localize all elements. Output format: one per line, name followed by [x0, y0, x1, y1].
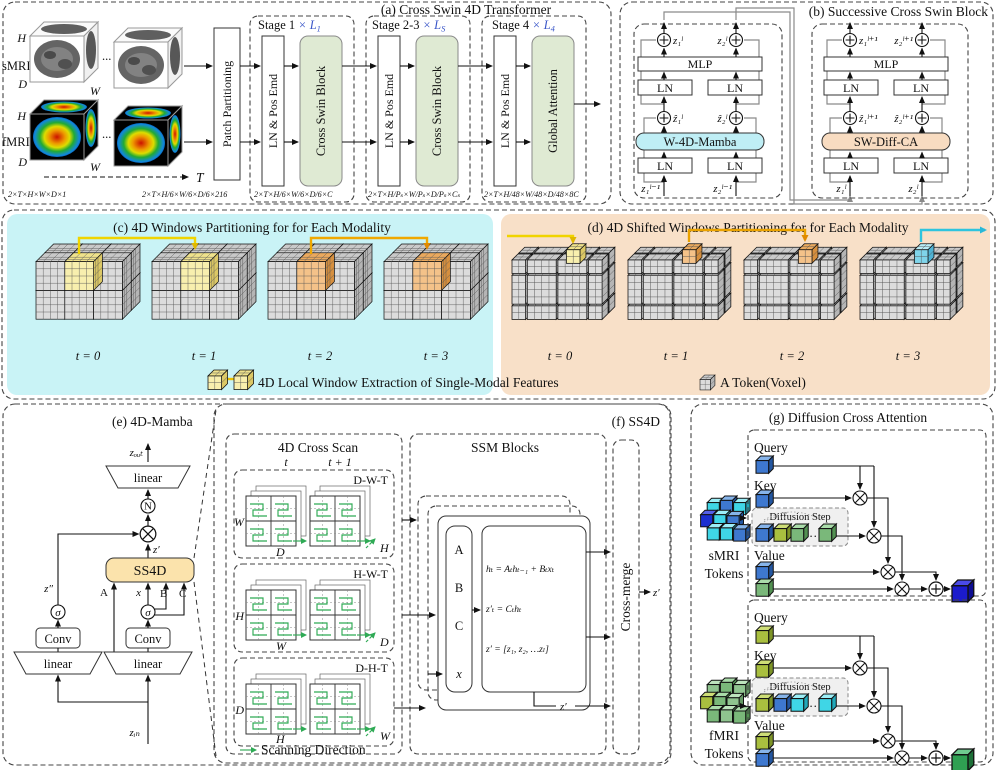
- zoom-connector: [194, 410, 216, 756]
- axis-bottom: W: [276, 639, 287, 653]
- mamba-cell-diagram: zₒᵤₜ linear N z′ SS4D A x B C σ Conv lin…: [14, 410, 216, 756]
- input-x-label: x: [135, 587, 141, 599]
- fmri-tokens-label-1: fMRI: [709, 728, 740, 743]
- z-in-1: z₁ˡ⁻¹: [640, 183, 660, 195]
- key-cube-icon: [756, 660, 773, 677]
- diffca-swin-subblock: MLP LN LN SW-Diff-CA LN LN z₁ˡ⁺¹ z₂ˡ⁺¹ ẑ…: [812, 23, 968, 198]
- highlight-token-orange: [798, 244, 818, 264]
- ln-label: LN: [727, 159, 743, 173]
- axis-right: W: [380, 729, 391, 743]
- fmri-volume-1: [30, 100, 98, 160]
- dim-input: 2×T×H×W×D×1: [8, 190, 66, 199]
- cross-swin-block-label: Cross Swin Block: [430, 65, 444, 156]
- linear-label: linear: [134, 657, 163, 671]
- highlight-window-yellow: [65, 253, 103, 291]
- ln-label: LN: [657, 159, 673, 173]
- ln-label: LN: [843, 81, 859, 95]
- stage-2-3-label: Stage 2-3× LS: [372, 18, 446, 34]
- window-cluster-t0: [36, 244, 140, 319]
- add-icon: [730, 34, 743, 47]
- z-in-2: z₂ˡ: [907, 183, 918, 195]
- value-cube-icon: [756, 579, 773, 596]
- axis-h-label: H: [16, 31, 27, 45]
- param-b: B: [455, 581, 463, 595]
- t-label: t: [284, 455, 288, 469]
- fmri-tokens-label-2: Tokens: [705, 746, 744, 761]
- stage-4-label: Stage 4× L4: [492, 18, 556, 34]
- legend-token-cube-icon: [700, 375, 715, 390]
- cross-scan-title: 4D Cross Scan: [278, 440, 358, 455]
- panel-a-title: (a) Cross Swin 4D Transformer: [381, 2, 552, 17]
- stage-1-label: Stage 1× L1: [258, 18, 321, 34]
- fmri-tokens-cluster: fMRI Tokens: [701, 678, 751, 761]
- sw-diff-ca-label: SW-Diff-CA: [854, 135, 918, 149]
- z-mid-1: ẑ₁ˡ⁺¹: [858, 113, 878, 125]
- input-a-label: A: [100, 587, 108, 599]
- window-cluster-t1: [152, 244, 256, 319]
- conv-label: Conv: [134, 632, 162, 646]
- z-out-2: z₂ˡ: [716, 35, 727, 47]
- dim-patch: 2×T×H/6×W/6×D/6×216: [142, 190, 227, 199]
- smri-tokens-label-2: Tokens: [705, 566, 744, 581]
- highlight-token-cyan: [914, 244, 934, 264]
- t3-label: t = 3: [424, 349, 448, 363]
- ssm-blocks: SSM Blocks A B C x hₜ = Aₜhₜ₋₁ + Bₜxₜ z′…: [394, 434, 610, 754]
- t2-label: t = 2: [780, 349, 804, 363]
- panel-b-border: [620, 2, 993, 204]
- query-label: Query: [754, 610, 788, 625]
- axis-bottom: D: [275, 545, 285, 559]
- ln-label: LN: [843, 159, 859, 173]
- scan-order-label: H-W-T: [353, 567, 388, 581]
- value-label: Value: [754, 718, 785, 733]
- ellipsis: ...: [102, 49, 111, 63]
- shifted-cluster-t2: [744, 244, 847, 320]
- axis-d-label: D: [17, 155, 27, 169]
- window-cluster-t2: [268, 244, 372, 319]
- w-4d-mamba-label: W-4D-Mamba: [664, 135, 737, 149]
- multiply-icon: [881, 565, 895, 579]
- cross-swin-block-label: Cross Swin Block: [314, 65, 328, 156]
- linear-label: linear: [44, 657, 73, 671]
- axis-left: W: [234, 515, 245, 529]
- z-mid-2: ẑ₂ˡ⁺¹: [893, 113, 913, 125]
- highlight-window-orange: [413, 253, 451, 291]
- value-label: Value: [754, 548, 785, 563]
- multiply-icon: [895, 751, 909, 765]
- smri-attention-block: Query Key Diffusion Step … Value: [748, 430, 986, 602]
- highlight-token-orange: [682, 244, 702, 264]
- stage-2-3: Stage 2-3× LS LN & Pos Emd Cross Swin Bl…: [366, 16, 470, 202]
- zin-label: zᵢₙ: [129, 727, 140, 739]
- add-icon: [929, 582, 943, 596]
- add-icon: [730, 112, 743, 125]
- z-out-1: z₁ˡ⁺¹: [858, 35, 878, 47]
- axis-right: H: [379, 541, 390, 555]
- eq-output: z′ₜ = Cₜhₜ: [485, 604, 522, 615]
- t1-label: t + 1: [328, 455, 351, 469]
- ln-label: LN: [657, 81, 673, 95]
- axis-w-label: W: [90, 84, 101, 98]
- t1-label: t = 1: [664, 349, 688, 363]
- scan-order-label: D-W-T: [353, 473, 388, 487]
- value-cube-icon: [756, 732, 773, 749]
- query-label: Query: [754, 440, 788, 455]
- smri-label: sMRI: [2, 59, 30, 73]
- fmri-label: fMRI: [2, 135, 30, 149]
- sigma-label: σ: [145, 607, 151, 619]
- add-icon: [844, 112, 857, 125]
- value-cube-icon: [756, 749, 773, 766]
- zout-label: zₒᵤₜ: [129, 447, 144, 459]
- shifted-cluster-t1: [628, 244, 731, 320]
- input-b-label: B: [160, 588, 167, 600]
- multiply-icon: [895, 582, 909, 596]
- ln-pos-emd-label: LN & Pos Emd: [266, 74, 280, 148]
- axis-d-label: D: [17, 77, 27, 91]
- z-mid-2: ẑ₂ˡ: [716, 113, 727, 125]
- axis-h-label: H: [16, 109, 27, 123]
- multiply-icon: [853, 491, 867, 505]
- smri-output-cube: [952, 580, 974, 602]
- smri-tokens-cluster: sMRI Tokens: [701, 496, 751, 581]
- eq-hidden-state: hₜ = Aₜhₜ₋₁ + Bₜxₜ: [486, 564, 555, 575]
- multiply-icon: [853, 661, 867, 675]
- axis-left: D: [234, 703, 244, 717]
- mlp-label: MLP: [688, 57, 713, 71]
- mamba-swin-subblock: MLP LN LN W-4D-Mamba LN LN z₁ˡ z₂ˡ ẑ₁ˡ ẑ…: [634, 8, 922, 204]
- shifted-cluster-t0: [512, 244, 615, 320]
- eq-sequence: z′ = [z₁, z₂, …zₗ]: [485, 644, 549, 655]
- ssm-title: SSM Blocks: [471, 440, 539, 455]
- linear-label: linear: [134, 471, 163, 485]
- ss4d-panel: (f) SS4D 4D Cross Scan t t + 1 D-W-T W D…: [214, 404, 670, 763]
- add-icon: [929, 751, 943, 765]
- shifted-cluster-t3: [860, 244, 963, 320]
- legend-window-cube-icon: [208, 370, 228, 390]
- param-c: C: [455, 619, 463, 633]
- global-attention-label: Global Attention: [546, 68, 560, 152]
- smri-volume-1: [30, 22, 98, 82]
- dim-stage4: 2×T×H/48×W/48×D/48×8C: [484, 190, 579, 199]
- key-cube-icon: [756, 490, 773, 507]
- t3-label: t = 3: [896, 349, 920, 363]
- add-icon: [916, 112, 929, 125]
- stage-4: Stage 4× L4 LN & Pos Emd Global Attentio…: [482, 16, 586, 202]
- panel-e-title: (e) 4D-Mamba: [112, 414, 193, 429]
- z-out-2: z₂ˡ⁺¹: [893, 35, 913, 47]
- add-icon: [916, 34, 929, 47]
- scan-group-dwt: D-W-T W D H: [234, 470, 394, 559]
- legend-token-label: A Token(Voxel): [720, 375, 806, 390]
- highlight-window-yellow: [181, 253, 219, 291]
- zdprime-label: z″: [43, 583, 53, 595]
- norm-label: N: [144, 501, 152, 513]
- t0-label: t = 0: [548, 349, 573, 363]
- input-c-label: C: [179, 588, 186, 600]
- ellipsis: ...: [102, 127, 111, 141]
- conv-label: Conv: [44, 632, 72, 646]
- dim-stage1: 2×T×H/6×W/6×D/6×C: [254, 190, 333, 199]
- panel-b-title: (b) Successive Cross Swin Block: [809, 4, 988, 19]
- panel-ef: (e) 4D-Mamba zₒᵤₜ linear N z′ SS4D A x B…: [0, 400, 676, 770]
- row-cd: (c) 4D Windows Partitioning for for Each…: [0, 208, 997, 402]
- panel-a: (a) Cross Swin 4D Transformer sMRI ... H…: [0, 0, 614, 208]
- multiply-icon: [867, 529, 881, 543]
- ln-label: LN: [913, 81, 929, 95]
- ln-pos-emd-label: LN & Pos Emd: [382, 74, 396, 148]
- panel-b: (b) Successive Cross Swin Block MLP LN L…: [616, 0, 997, 208]
- axis-left: H: [234, 609, 245, 623]
- value-cube-icon: [756, 562, 773, 579]
- zprime-label: z′: [152, 544, 160, 556]
- legend-window-label: 4D Local Window Extraction of Single-Mod…: [258, 375, 559, 390]
- window-cluster-t3: [384, 244, 488, 319]
- ln-label: LN: [727, 81, 743, 95]
- mlp-label: MLP: [874, 57, 899, 71]
- stage-1: Stage 1× L1 LN & Pos Emd Cross Swin Bloc…: [250, 16, 354, 202]
- add-icon: [658, 112, 671, 125]
- add-icon: [844, 34, 857, 47]
- cross-merge-label: Cross-merge: [618, 563, 633, 632]
- dim-stage23: 2×T×H/Pₛ×W/Pₛ×D/Pₛ×Cₛ: [368, 190, 460, 199]
- z-in-2: z₂ˡ⁻¹: [712, 183, 732, 195]
- sigma-label: σ: [55, 607, 61, 619]
- z-in-1: z₁ˡ: [835, 183, 846, 195]
- ln-pos-emd-label: LN & Pos Emd: [498, 74, 512, 148]
- fmri-volume-2: [114, 106, 182, 166]
- panel-g-title: (g) Diffusion Cross Attention: [769, 410, 928, 425]
- multiply-icon: [881, 734, 895, 748]
- z-mid-1: ẑ₁ˡ: [672, 113, 683, 125]
- highlight-token-yellow: [566, 244, 586, 264]
- diffusion-step-label: Diffusion Step: [769, 682, 830, 693]
- t0-label: t = 0: [76, 349, 101, 363]
- figure-cross-swin-4d-transformer: (a) Cross Swin 4D Transformer sMRI ... H…: [0, 0, 997, 770]
- legend-window-cube-icon: [234, 370, 254, 390]
- smri-tokens-label-1: sMRI: [709, 548, 740, 563]
- panel-c-title: (c) 4D Windows Partitioning for for Each…: [113, 220, 391, 235]
- zprime-out-label: z′: [652, 587, 660, 599]
- time-axis-label: T: [196, 170, 205, 185]
- multiply-icon: [140, 526, 156, 542]
- z-out-1: z₁ˡ: [672, 35, 683, 47]
- axis-right: D: [379, 635, 389, 649]
- ln-label: LN: [913, 159, 929, 173]
- scan-direction-label: Scanning Direction: [261, 742, 366, 757]
- panel-g: (g) Diffusion Cross Attention sMRI Token…: [688, 400, 997, 770]
- query-cube-icon: [756, 456, 773, 473]
- t1-label: t = 1: [192, 349, 216, 363]
- fmri-attention-block: Query Key Diffusion Step … Value: [748, 600, 986, 770]
- scan-group-hwt: H-W-T H W D: [234, 564, 394, 653]
- highlight-window-orange: [297, 253, 335, 291]
- zprime-label: z′: [559, 701, 567, 713]
- query-cube-icon: [756, 626, 773, 643]
- param-x: x: [455, 667, 462, 681]
- axis-w-label: W: [90, 160, 101, 174]
- patch-partitioning-label: Patch Partitioning: [220, 61, 234, 147]
- t2-label: t = 2: [308, 349, 332, 363]
- scan-group-dht: D-H-T D H W: [234, 658, 394, 746]
- smri-volume-2: [114, 28, 182, 88]
- scan-order-label: D-H-T: [355, 661, 388, 675]
- multiply-icon: [867, 699, 881, 713]
- diffusion-step-label: Diffusion Step: [769, 512, 830, 523]
- add-icon: [658, 34, 671, 47]
- fmri-output-cube: [952, 749, 974, 770]
- param-a: A: [454, 543, 463, 557]
- panel-f-title: (f) SS4D: [612, 414, 661, 429]
- ss4d-label: SS4D: [134, 564, 167, 579]
- panel-d-title: (d) 4D Shifted Windows Partitioning for …: [588, 220, 909, 235]
